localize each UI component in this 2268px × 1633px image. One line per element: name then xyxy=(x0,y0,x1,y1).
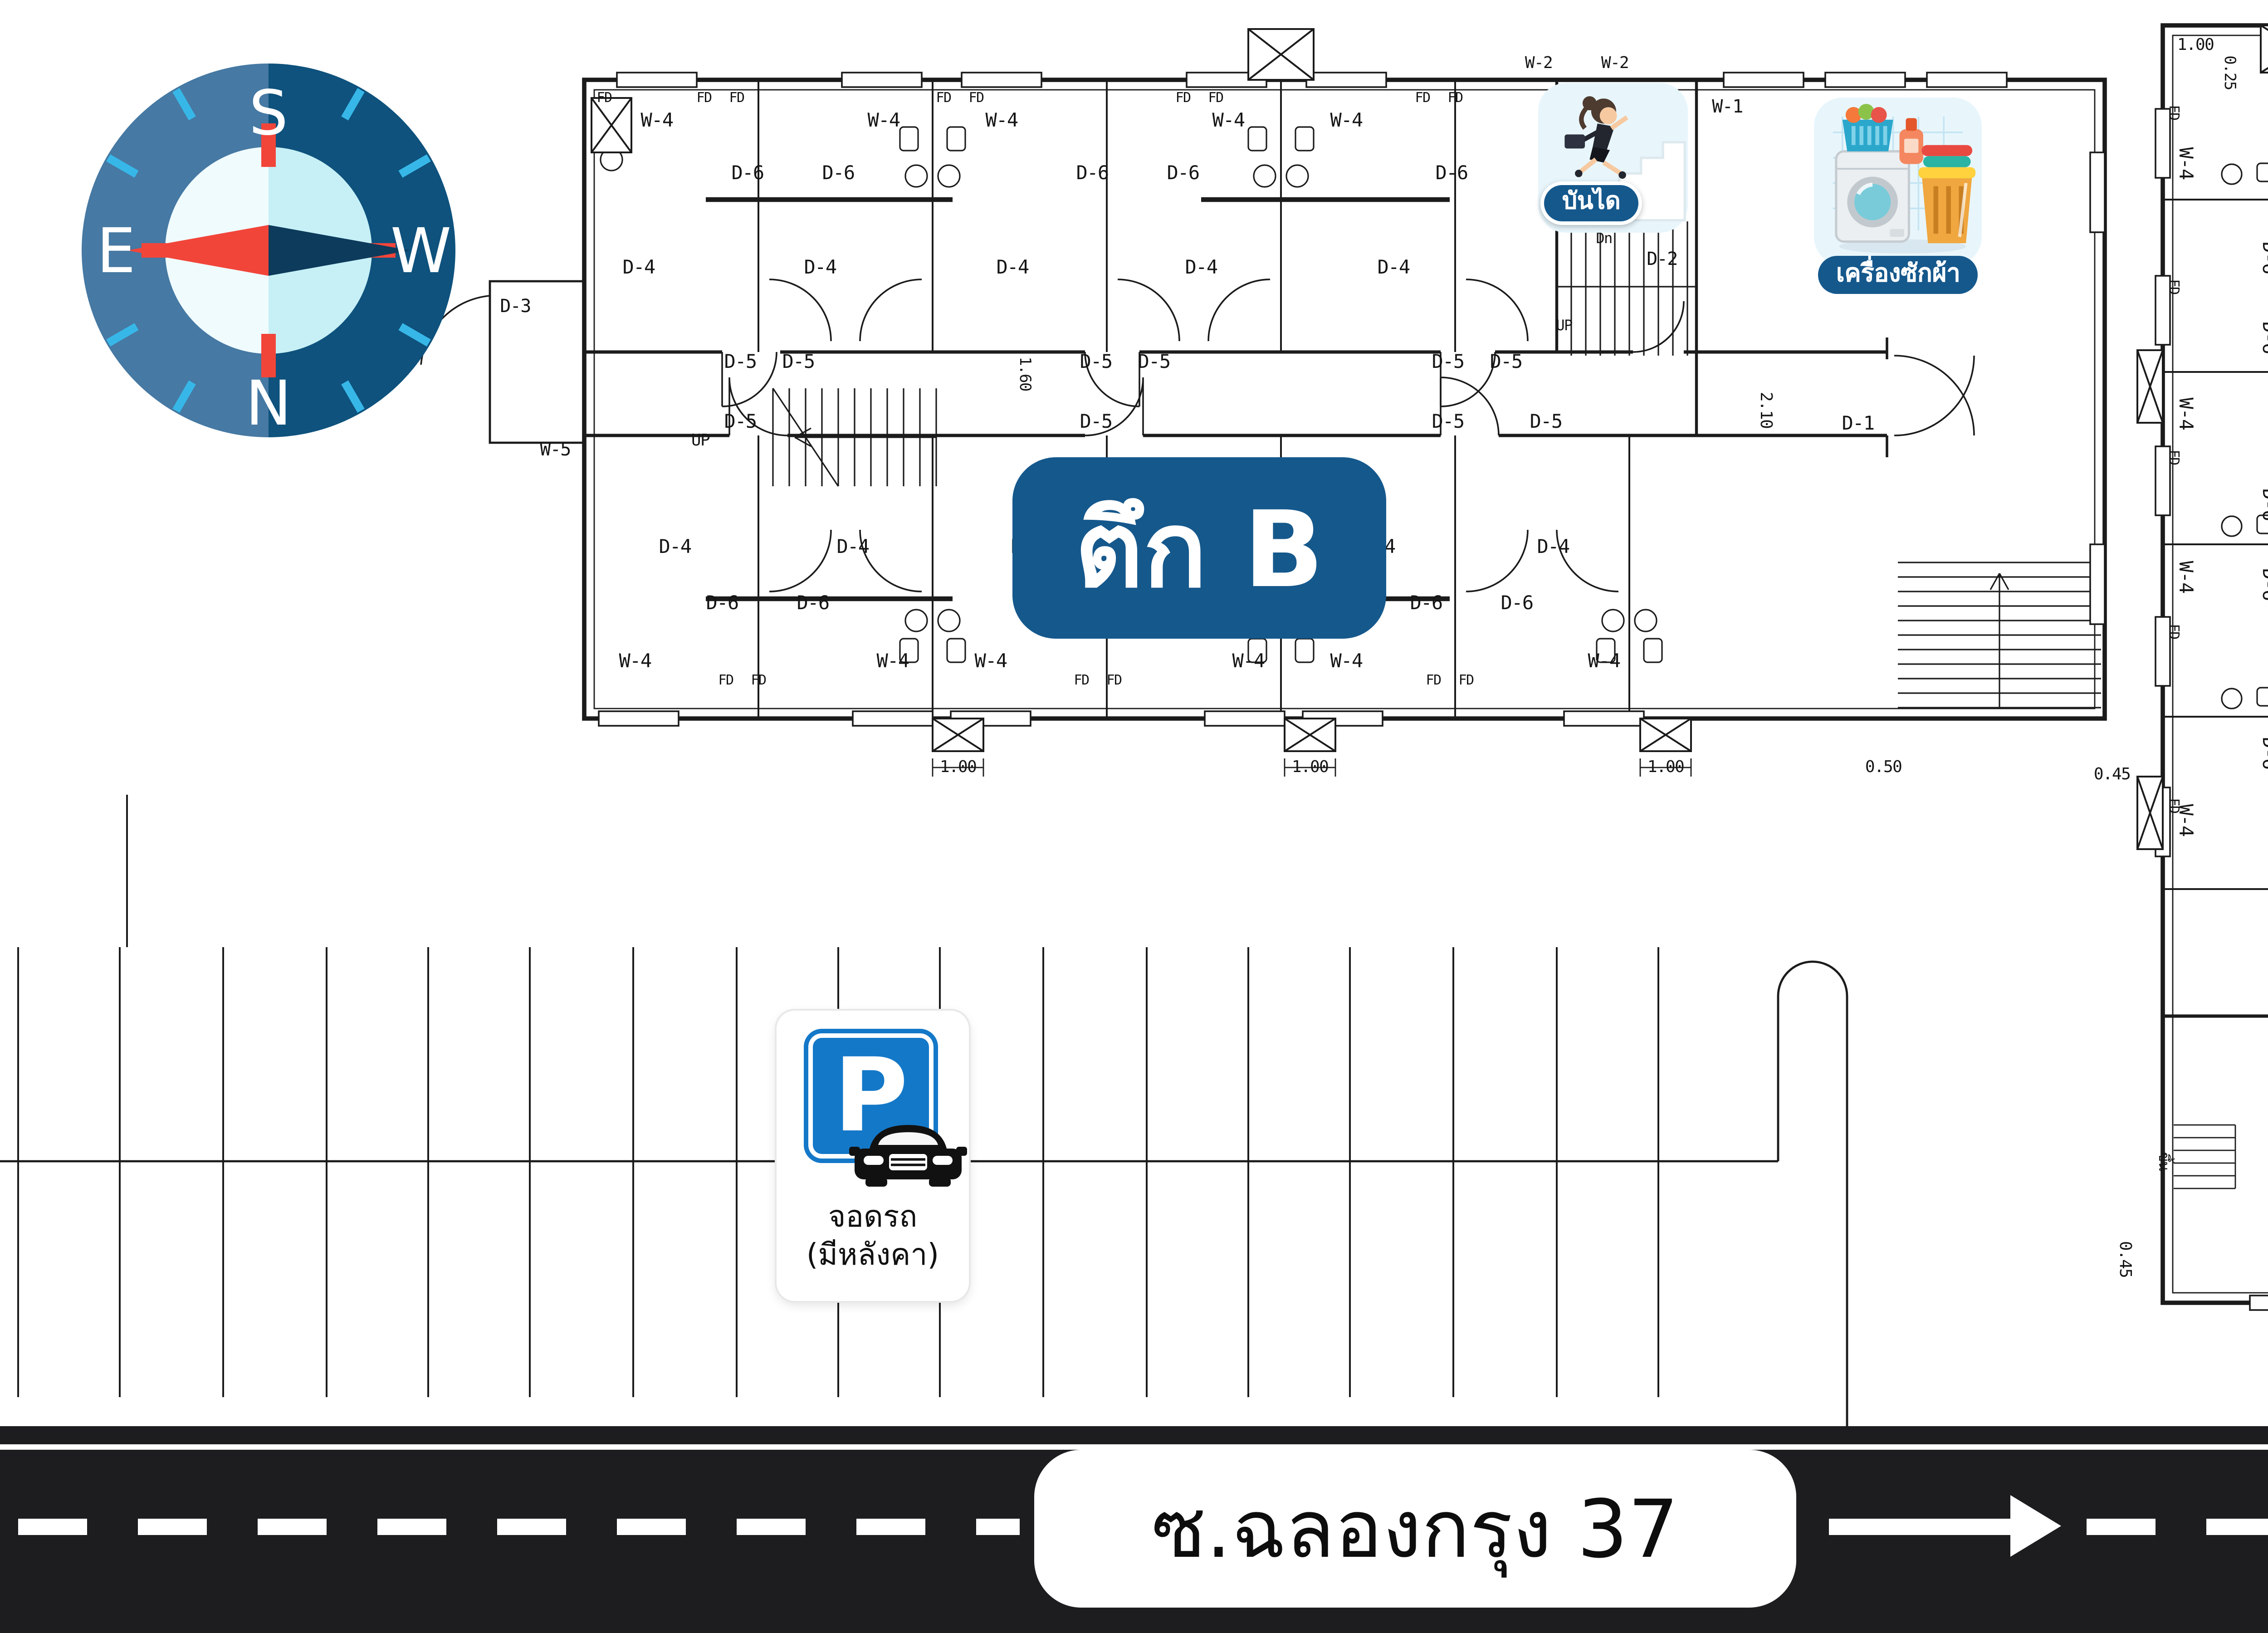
road-center-dashes xyxy=(2087,1519,2268,1535)
site-plan-page: FLOWER Open xyxy=(0,0,2268,1633)
road-center-dashes xyxy=(18,1519,1020,1535)
building-b-badge: ตึก B xyxy=(1012,457,1386,639)
washing-machine-icon xyxy=(1811,94,1985,269)
road-direction-arrow-head xyxy=(2010,1495,2061,1557)
building-a-plan xyxy=(2137,0,2268,1364)
compass: S N E W xyxy=(73,54,464,446)
road: ซ.ฉลองกรุง 37 xyxy=(0,1426,2268,1633)
compass-label-west: W xyxy=(391,215,451,287)
building-b-left-stair xyxy=(773,388,936,486)
car-icon xyxy=(849,1116,969,1188)
laundry-label: เครื่องซักผ้า xyxy=(1818,256,1979,294)
building-b-stairwell xyxy=(1557,221,1696,356)
building-a-fixtures xyxy=(2222,163,2268,709)
road-direction-arrow xyxy=(1829,1519,2014,1535)
compass-label-north: N xyxy=(245,368,292,440)
parking-caption-line2: (มีหลังคา) xyxy=(777,1237,969,1275)
road-edge-line xyxy=(0,1444,2268,1450)
parking-caption-line1: จอดรถ xyxy=(777,1199,969,1237)
building-b-exterior-stair xyxy=(1898,562,2101,708)
parking-sign-card: P จอดรถ (มีหลังคา) xyxy=(777,1011,969,1301)
road-name-pill: ซ.ฉลองกรุง 37 xyxy=(1034,1450,1796,1608)
compass-label-east: E xyxy=(97,215,136,287)
compass-label-south: S xyxy=(249,78,288,149)
stairs-label-building-b: บันได xyxy=(1540,181,1642,225)
